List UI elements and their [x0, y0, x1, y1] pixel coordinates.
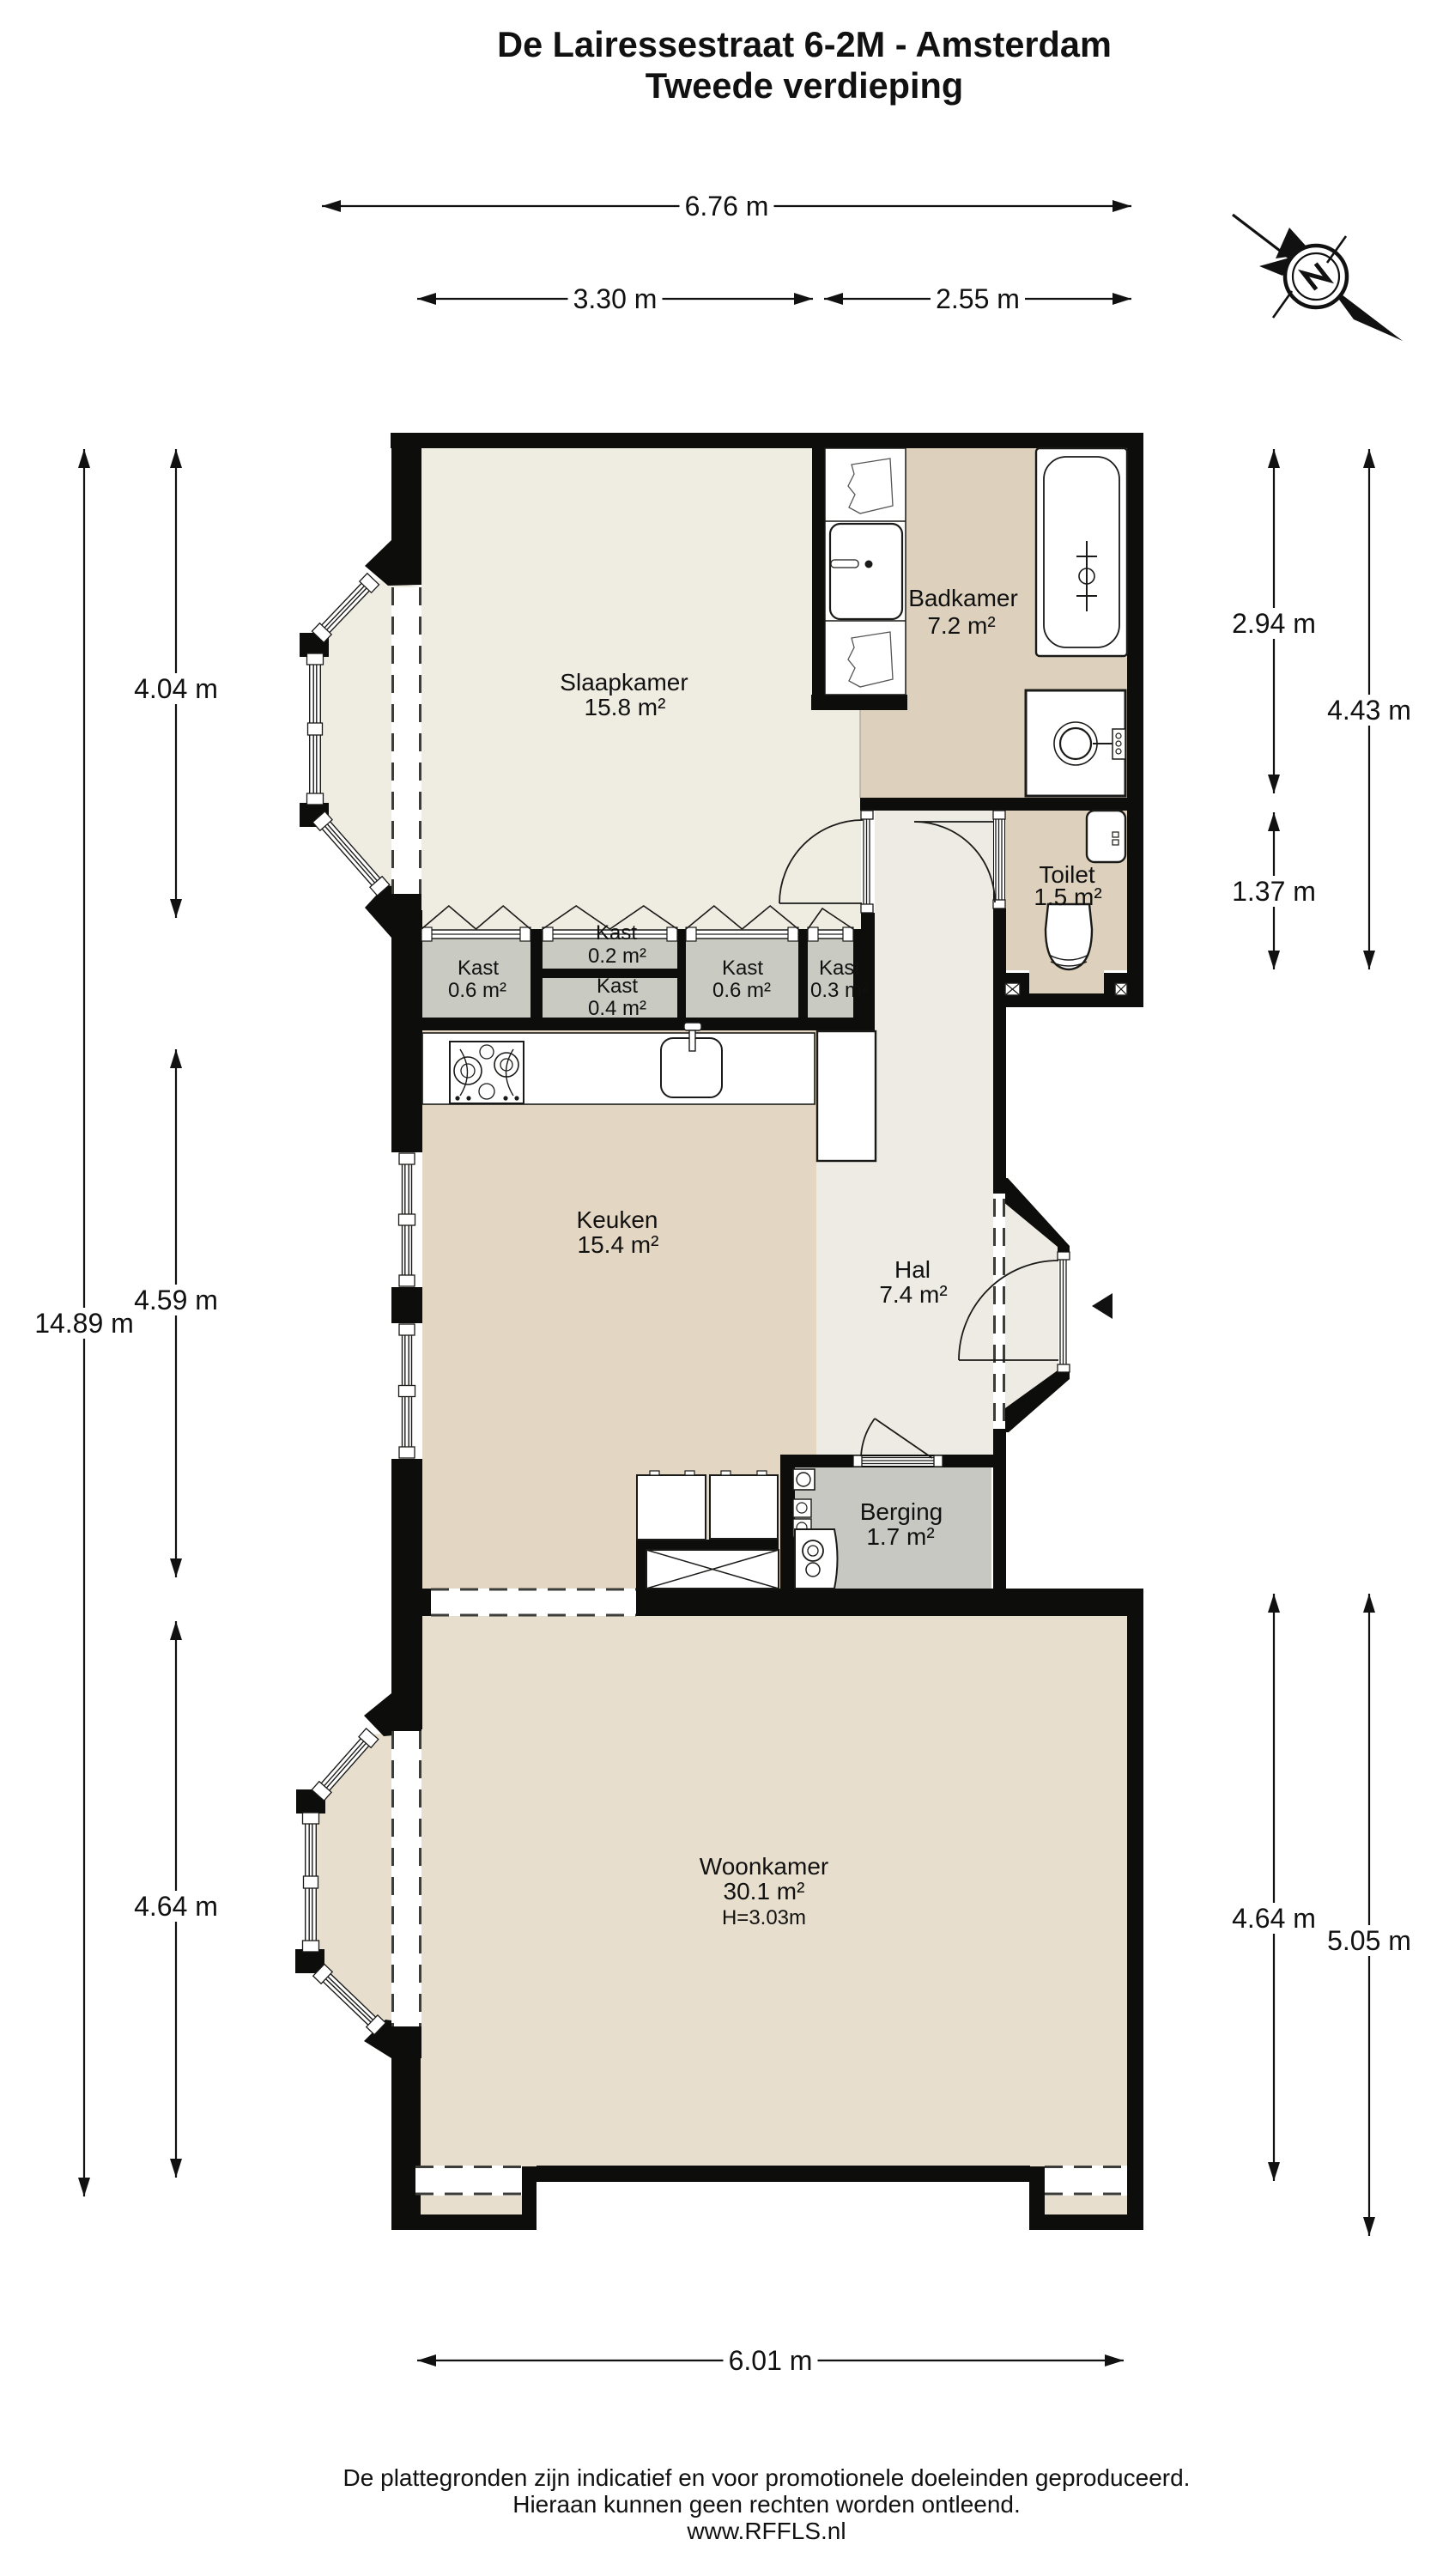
svg-text:0.2 m²: 0.2 m² [588, 945, 646, 968]
svg-text:15.8 m²: 15.8 m² [585, 694, 666, 720]
svg-text:0.4 m²: 0.4 m² [588, 997, 646, 1020]
svg-text:Hal: Hal [894, 1256, 931, 1283]
svg-text:Kast: Kast [458, 957, 499, 980]
svg-text:Tweede verdieping: Tweede verdieping [646, 65, 964, 106]
svg-text:6.01 m: 6.01 m [729, 2345, 813, 2376]
svg-text:2.55 m: 2.55 m [936, 283, 1020, 314]
svg-text:7.4 m²: 7.4 m² [879, 1281, 947, 1308]
svg-text:Keuken: Keuken [577, 1206, 658, 1233]
svg-text:4.59 m: 4.59 m [134, 1285, 218, 1315]
svg-text:Woonkamer: Woonkamer [700, 1853, 828, 1880]
svg-text:De Lairessestraat 6-2M - Amste: De Lairessestraat 6-2M - Amsterdam [497, 24, 1112, 64]
svg-text:0.6 m²: 0.6 m² [712, 979, 771, 1002]
svg-text:Kast: Kast [819, 957, 860, 980]
svg-text:30.1 m²: 30.1 m² [724, 1878, 805, 1905]
svg-text:0.6 m²: 0.6 m² [448, 979, 506, 1002]
svg-text:Badkamer: Badkamer [908, 585, 1018, 611]
svg-text:2.94 m: 2.94 m [1232, 608, 1316, 639]
svg-text:Kast: Kast [722, 957, 763, 980]
svg-text:Kast: Kast [596, 921, 637, 945]
svg-text:3.30 m: 3.30 m [573, 283, 658, 314]
svg-text:1.7 m²: 1.7 m² [866, 1523, 934, 1550]
svg-text:5.05 m: 5.05 m [1327, 1925, 1411, 1956]
svg-text:Slaapkamer: Slaapkamer [560, 669, 688, 696]
svg-text:Berging: Berging [860, 1498, 943, 1525]
svg-text:15.4 m²: 15.4 m² [578, 1231, 659, 1258]
svg-text:1.37 m: 1.37 m [1232, 876, 1316, 907]
svg-text:www.RFFLS.nl: www.RFFLS.nl [686, 2518, 846, 2544]
svg-text:De plattegronden zijn indicati: De plattegronden zijn indicatief en voor… [343, 2464, 1191, 2491]
svg-text:H=3.03m: H=3.03m [722, 1906, 806, 1929]
svg-text:4.64 m: 4.64 m [134, 1891, 218, 1922]
svg-text:0.3 m²: 0.3 m² [810, 979, 869, 1002]
svg-text:Kast: Kast [597, 975, 638, 998]
svg-text:4.43 m: 4.43 m [1327, 695, 1411, 726]
svg-text:7.2 m²: 7.2 m² [927, 612, 995, 639]
svg-text:Hieraan kunnen geen rechten wo: Hieraan kunnen geen rechten worden ontle… [512, 2491, 1021, 2518]
svg-text:1.5 m²: 1.5 m² [1034, 884, 1101, 910]
svg-text:4.64 m: 4.64 m [1232, 1903, 1316, 1934]
svg-text:6.76 m: 6.76 m [685, 191, 769, 222]
svg-text:4.04 m: 4.04 m [134, 673, 218, 704]
svg-text:14.89 m: 14.89 m [34, 1308, 134, 1339]
